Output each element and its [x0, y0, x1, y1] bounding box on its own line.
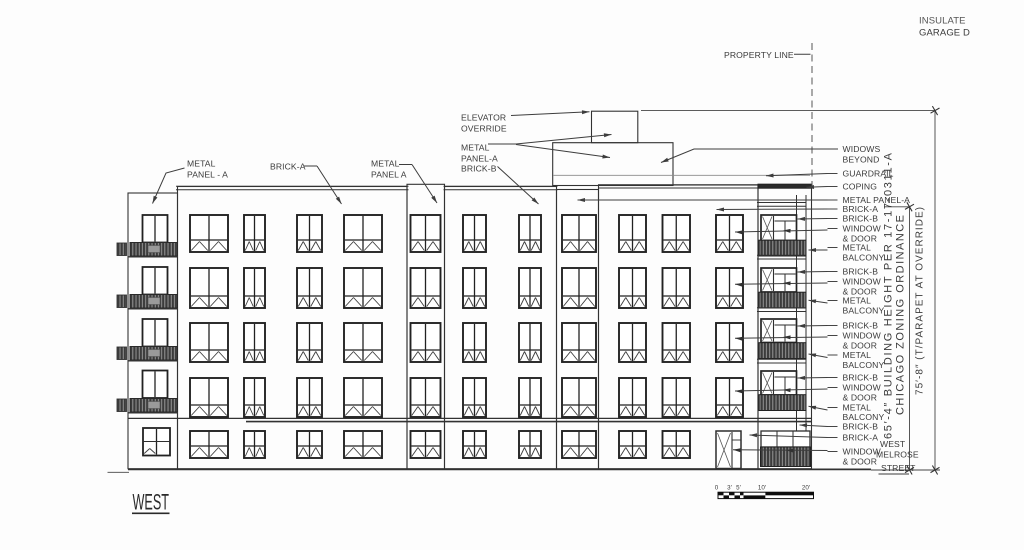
svg-text:BRICK-A: BRICK-A — [843, 433, 879, 443]
svg-text:BALCONY: BALCONY — [843, 306, 885, 316]
svg-text:ELEVATOR: ELEVATOR — [461, 113, 506, 123]
svg-text:WINDOW: WINDOW — [843, 383, 882, 393]
svg-text:10′: 10′ — [758, 485, 767, 492]
svg-text:WEST: WEST — [133, 490, 170, 515]
svg-text:BRICK-B: BRICK-B — [843, 214, 879, 224]
svg-text:BRICK-B: BRICK-B — [843, 267, 879, 277]
svg-text:0: 0 — [715, 485, 719, 492]
svg-text:WEST: WEST — [880, 439, 906, 449]
svg-text:& DOOR: & DOOR — [843, 341, 878, 351]
svg-text:WINDOW: WINDOW — [843, 277, 882, 287]
svg-text:INSULATE: INSULATE — [919, 16, 966, 27]
svg-text:OVERRIDE: OVERRIDE — [461, 124, 507, 134]
svg-text:BRICK-A: BRICK-A — [843, 204, 879, 214]
svg-text:GARAGE D: GARAGE D — [919, 28, 970, 39]
svg-text:MELROSE: MELROSE — [876, 450, 919, 460]
svg-text:BALCONY: BALCONY — [843, 360, 885, 370]
svg-text:METAL: METAL — [461, 143, 490, 153]
svg-text:WINDOW: WINDOW — [843, 331, 882, 341]
svg-text:5′: 5′ — [736, 485, 742, 492]
svg-text:20′: 20′ — [802, 485, 811, 492]
svg-text:BRICK-B: BRICK-B — [843, 373, 879, 383]
svg-text:PROPERTY LINE: PROPERTY LINE — [724, 50, 794, 60]
svg-text:BRICK-B: BRICK-B — [843, 422, 879, 432]
svg-text:METAL: METAL — [187, 159, 216, 169]
svg-text:3′: 3′ — [727, 485, 733, 492]
svg-text:STREET: STREET — [881, 463, 916, 473]
svg-text:& DOOR: & DOOR — [843, 393, 878, 403]
svg-text:& DOOR: & DOOR — [843, 457, 878, 467]
svg-text:METAL: METAL — [843, 296, 872, 306]
svg-text:65′-4″ BUILDING HEIGHT PER 17-: 65′-4″ BUILDING HEIGHT PER 17-17-0311-A — [883, 152, 895, 439]
svg-text:METAL: METAL — [843, 403, 872, 413]
svg-text:BRICK-B: BRICK-B — [461, 164, 497, 174]
svg-text:BRICK-B: BRICK-B — [843, 321, 879, 331]
svg-text:WIDOWS: WIDOWS — [843, 144, 881, 154]
svg-text:BRICK-A: BRICK-A — [270, 162, 306, 172]
svg-text:PANEL - A: PANEL - A — [187, 170, 228, 180]
svg-text:METAL: METAL — [843, 243, 872, 253]
svg-text:PANEL-A: PANEL-A — [461, 154, 498, 164]
svg-text:METAL: METAL — [371, 159, 400, 169]
svg-text:75′-8″ (T/PARAPET AT OVERRIDE): 75′-8″ (T/PARAPET AT OVERRIDE) — [915, 207, 926, 395]
svg-text:BEYOND: BEYOND — [843, 155, 880, 165]
svg-text:COPING: COPING — [843, 182, 878, 192]
svg-text:PANEL A: PANEL A — [371, 170, 407, 180]
svg-text:BALCONY: BALCONY — [843, 253, 885, 263]
svg-text:BALCONY: BALCONY — [843, 412, 885, 422]
svg-text:WINDOW: WINDOW — [843, 224, 882, 234]
svg-text:CHICAGO ZONING ORDINANCE: CHICAGO ZONING ORDINANCE — [895, 215, 907, 415]
svg-text:METAL: METAL — [843, 350, 872, 360]
